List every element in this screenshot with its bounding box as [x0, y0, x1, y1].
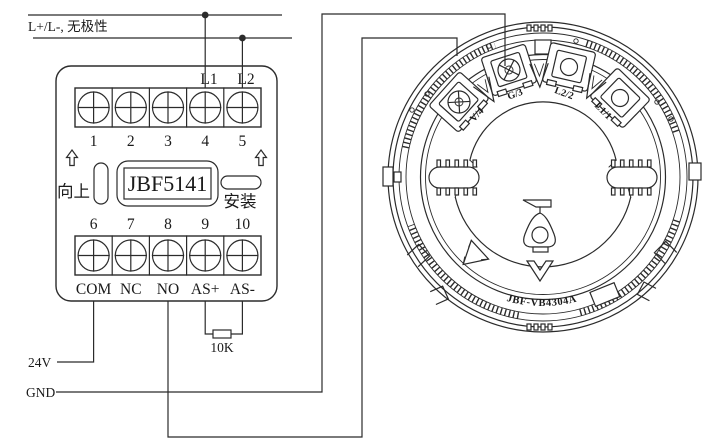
terminal-7-screw[interactable] — [115, 240, 146, 271]
svg-text:10: 10 — [235, 216, 251, 233]
base-left-slot — [429, 160, 479, 195]
base-right-slot — [607, 160, 657, 195]
orientation-chevron-icon — [527, 261, 553, 281]
bus-label: L+/L-, 无极性 — [28, 19, 108, 34]
terminal-5-screw[interactable] — [227, 92, 258, 123]
svg-text:5: 5 — [239, 133, 247, 150]
orientation-label: 向上 — [57, 182, 90, 201]
resistor-value-label: 10K — [210, 340, 234, 355]
terminal-no-label: NO — [157, 281, 179, 298]
terminal-1-screw[interactable] — [78, 92, 109, 123]
svg-text:6: 6 — [90, 216, 98, 233]
terminal-9-screw[interactable] — [190, 240, 221, 271]
base-bottom-tab — [590, 283, 620, 307]
terminal-2-screw[interactable] — [115, 92, 146, 123]
detector-base: V/4 G/3 L2/2 L1/1 JBF-VB4304A — [383, 22, 701, 332]
terminal-com-label: COM — [76, 281, 112, 298]
resistor-10k — [213, 330, 231, 338]
terminal-asminus-label: AS- — [230, 281, 255, 298]
module-bottom-terminal-strip — [75, 236, 261, 275]
terminal-6-screw[interactable] — [78, 240, 109, 271]
svg-text:8: 8 — [164, 216, 172, 233]
svg-text:4: 4 — [201, 133, 209, 150]
terminal-8-screw[interactable] — [153, 240, 184, 271]
base-model-text: JBF-VB4304A — [505, 293, 578, 309]
wire-as-plus — [205, 301, 213, 334]
base-center-key — [523, 200, 555, 252]
svg-text:9: 9 — [201, 216, 209, 233]
svg-text:3: 3 — [164, 133, 172, 150]
svg-text:2: 2 — [127, 133, 135, 150]
svg-text:7: 7 — [127, 216, 135, 233]
terminal-l2-label: L2 — [237, 71, 254, 88]
terminal-10-screw[interactable] — [227, 240, 258, 271]
terminal-nc-label: NC — [120, 281, 142, 298]
terminal-3-screw[interactable] — [153, 92, 184, 123]
module-model-text: JBF5141 — [128, 171, 207, 196]
module-jbf5141: L1 L2 1 2 3 4 5 向上 JBF5141 安装 6 7 8 9 10 — [56, 66, 277, 301]
terminal-l1-label: L1 — [200, 71, 217, 88]
install-label: 安装 — [224, 192, 257, 211]
wire-24v-to-com — [57, 301, 94, 362]
gnd-label: GND — [26, 385, 55, 400]
terminal-asplus-label: AS+ — [191, 281, 220, 298]
module-top-terminal-strip — [75, 88, 261, 127]
svg-text:1: 1 — [90, 133, 98, 150]
supply-24v-label: 24V — [28, 355, 52, 370]
wire-as-minus — [231, 301, 242, 334]
recycle-icon — [459, 238, 489, 265]
terminal-4-screw[interactable] — [190, 92, 221, 123]
wiring-diagram: V/4 G/3 L2/2 L1/1 JBF-VB4304A — [0, 0, 720, 448]
